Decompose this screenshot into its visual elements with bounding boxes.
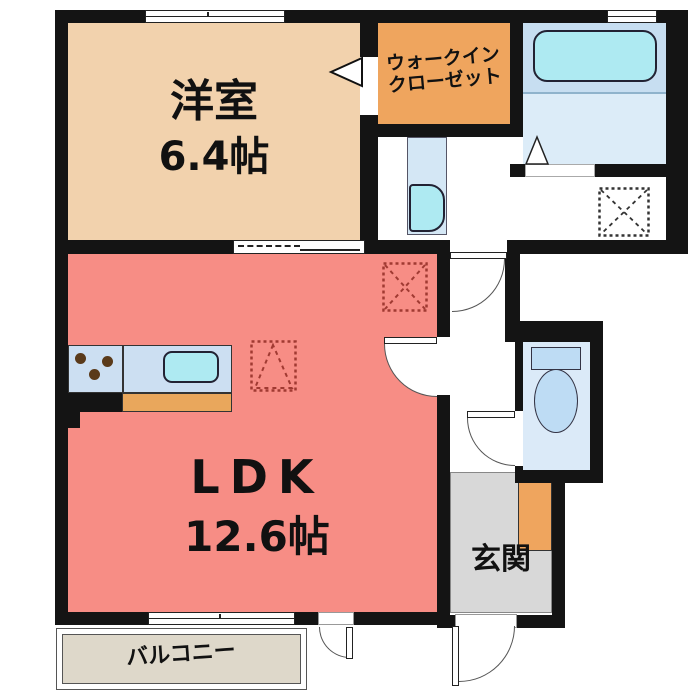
cupboard-space-icon xyxy=(250,340,297,392)
washbasin-icon xyxy=(409,184,445,232)
ldk-exterior-door-leaf xyxy=(346,627,353,659)
wall xyxy=(55,240,233,254)
genkan-label: 玄関 xyxy=(448,542,554,577)
window-tick xyxy=(219,614,221,619)
ldk-name-label: LDK xyxy=(87,450,427,504)
window-tick xyxy=(207,12,209,17)
bath-folding-door-icon xyxy=(524,134,550,166)
entrance-door-leaf xyxy=(452,626,459,686)
window-line xyxy=(146,16,284,17)
wall xyxy=(360,240,450,254)
wall xyxy=(68,393,122,412)
wall xyxy=(590,321,603,483)
kitchen-counter-divider xyxy=(122,345,124,393)
wall xyxy=(354,612,450,625)
wall xyxy=(360,124,512,137)
window-line xyxy=(608,16,656,17)
ldk-exterior-door-opening xyxy=(318,612,354,625)
wall xyxy=(666,10,688,254)
floor-plan: 洋室 6.4帖 ウォークイン クローゼット LDK 12.6帖 玄関 バルコニー xyxy=(0,0,700,700)
yoshitsu-ldk-sliding-door xyxy=(233,240,365,254)
wall xyxy=(55,612,148,625)
toilet-tank xyxy=(531,347,581,370)
wall xyxy=(517,615,565,628)
sliding-door-dashed-line xyxy=(238,245,300,247)
room-yoshitsu xyxy=(68,22,360,240)
wall xyxy=(505,254,520,321)
kitchen-base-cabinet xyxy=(122,393,232,412)
washroom-door-leaf xyxy=(450,252,507,259)
wall xyxy=(505,321,603,342)
toilet-door-arc xyxy=(467,418,515,466)
wall xyxy=(295,612,318,625)
wall xyxy=(55,10,68,625)
kitchen-sink-icon xyxy=(163,351,219,383)
ldk-size-label: 12.6帖 xyxy=(87,512,427,562)
toilet-door-opening xyxy=(515,411,523,466)
stove-burner-icon xyxy=(102,356,113,367)
entrance-door-arc xyxy=(459,626,515,682)
toilet-icon xyxy=(534,369,578,433)
ldk-door-leaf xyxy=(384,337,437,344)
sliding-door-line xyxy=(300,249,360,251)
yoshitsu-size-label: 6.4帖 xyxy=(68,134,360,181)
wall xyxy=(68,412,80,428)
wall xyxy=(510,164,525,177)
toilet-door-leaf xyxy=(467,411,515,418)
washroom-door-arc xyxy=(452,259,505,312)
refrigerator-space-icon xyxy=(382,262,428,312)
wall xyxy=(595,164,666,177)
ldk-door-opening xyxy=(437,337,450,395)
bathroom-floor-divider xyxy=(523,92,666,94)
window-line xyxy=(149,618,294,619)
yoshitsu-name-label: 洋室 xyxy=(68,76,360,128)
bathtub-icon xyxy=(533,30,657,82)
wall xyxy=(507,240,688,254)
shoe-cabinet xyxy=(518,478,552,551)
stove-burner-icon xyxy=(89,369,100,380)
stove-burners-icon xyxy=(75,353,86,364)
washing-machine-space-icon xyxy=(598,187,650,237)
